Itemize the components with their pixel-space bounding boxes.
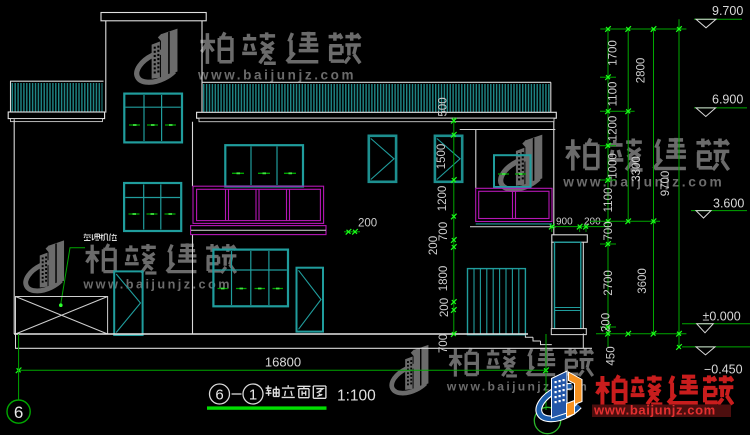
svg-text:1200: 1200 (608, 116, 620, 142)
svg-text:700: 700 (438, 334, 450, 353)
svg-text:6: 6 (14, 403, 23, 422)
svg-text:−0.450: −0.450 (704, 363, 743, 377)
svg-text:200: 200 (428, 236, 440, 255)
svg-text:200: 200 (601, 313, 613, 332)
svg-text:6.900: 6.900 (712, 93, 743, 107)
svg-text:200: 200 (358, 218, 377, 230)
svg-text:3.600: 3.600 (713, 196, 744, 210)
svg-text:9700: 9700 (660, 171, 672, 197)
svg-text:3300: 3300 (631, 156, 643, 182)
svg-text:1100: 1100 (608, 82, 620, 107)
svg-text:2800: 2800 (636, 58, 648, 84)
svg-text:200: 200 (584, 217, 601, 228)
svg-text:9.700: 9.700 (712, 4, 743, 18)
svg-text:700: 700 (603, 221, 615, 240)
svg-text:500: 500 (438, 97, 450, 116)
svg-text:1000: 1000 (608, 153, 620, 179)
svg-text:1200: 1200 (437, 186, 449, 212)
svg-text:1100: 1100 (603, 188, 615, 213)
svg-text:±0.000: ±0.000 (703, 310, 741, 324)
svg-text:1: 1 (249, 387, 257, 404)
svg-text:16800: 16800 (265, 355, 301, 370)
svg-text:900: 900 (556, 217, 573, 228)
svg-text:www.baijunjz.com: www.baijunjz.com (593, 403, 716, 418)
svg-text:1:100: 1:100 (337, 388, 376, 405)
svg-text:6: 6 (215, 387, 223, 404)
svg-text:200: 200 (439, 298, 451, 317)
svg-text:450: 450 (606, 346, 618, 365)
svg-text:3600: 3600 (637, 268, 649, 294)
svg-text:1500: 1500 (436, 144, 448, 170)
svg-text:2700: 2700 (603, 270, 615, 296)
svg-text:1700: 1700 (608, 40, 620, 66)
svg-text:1800: 1800 (438, 266, 450, 292)
